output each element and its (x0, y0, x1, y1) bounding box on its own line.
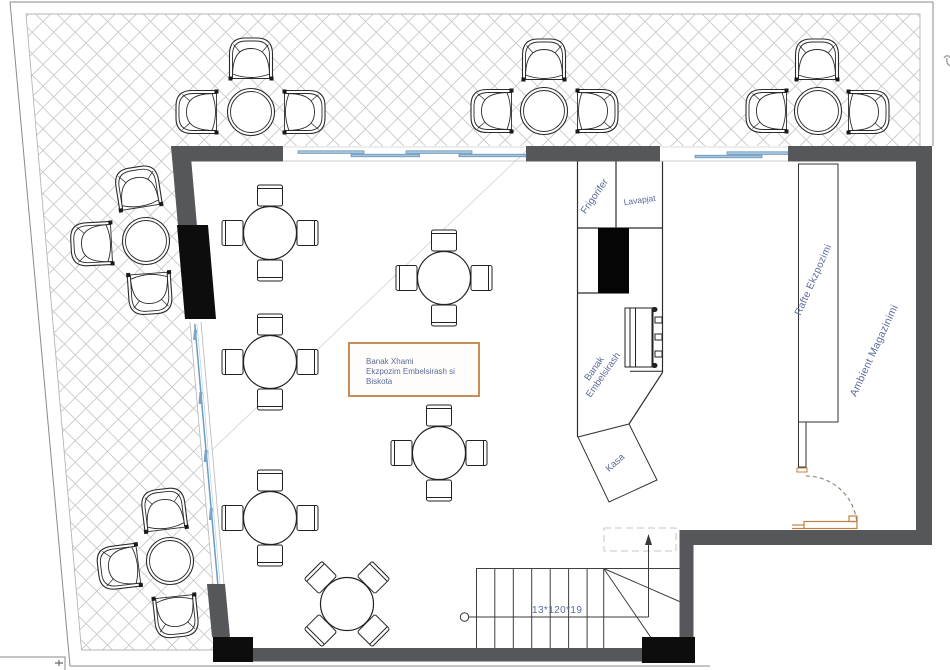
svg-text:Biskota: Biskota (366, 377, 393, 386)
svg-text:Ekzpozim Embelsirash si: Ekzpozim Embelsirash si (366, 367, 455, 376)
svg-text:Banak Xhami: Banak Xhami (366, 357, 414, 366)
svg-text:13*120*19: 13*120*19 (532, 605, 582, 616)
